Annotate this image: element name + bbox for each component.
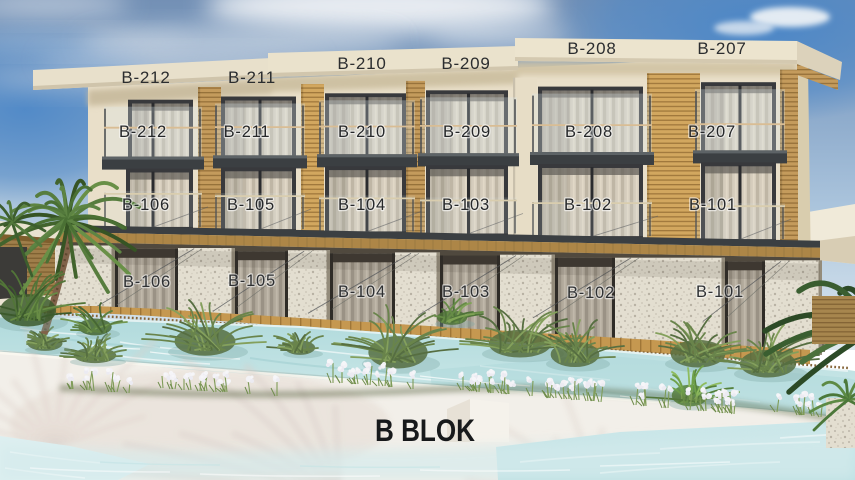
svg-text:B-104: B-104 — [338, 196, 386, 214]
svg-text:B-101: B-101 — [689, 196, 737, 214]
svg-text:B-210: B-210 — [338, 123, 386, 141]
svg-text:B-211: B-211 — [224, 123, 271, 141]
svg-text:B-103: B-103 — [442, 196, 490, 214]
svg-text:B-209: B-209 — [441, 54, 490, 73]
svg-text:B-106: B-106 — [123, 273, 171, 291]
svg-text:B-105: B-105 — [227, 196, 275, 214]
svg-text:B-211: B-211 — [228, 68, 276, 87]
svg-text:B-208: B-208 — [567, 39, 616, 58]
svg-text:B-104: B-104 — [338, 283, 386, 301]
svg-text:B-212: B-212 — [121, 68, 170, 87]
svg-text:B-105: B-105 — [228, 272, 276, 290]
svg-text:B-208: B-208 — [565, 123, 613, 141]
svg-text:B-106: B-106 — [122, 196, 170, 214]
svg-text:B-207: B-207 — [697, 39, 746, 58]
svg-text:B-101: B-101 — [696, 283, 744, 301]
svg-text:B-103: B-103 — [442, 283, 490, 301]
svg-text:B-102: B-102 — [567, 284, 615, 302]
svg-text:B-209: B-209 — [443, 123, 491, 141]
svg-text:B-212: B-212 — [119, 123, 167, 141]
svg-text:B BLOK: B BLOK — [375, 412, 475, 448]
svg-text:B-210: B-210 — [337, 54, 386, 73]
svg-text:B-207: B-207 — [688, 123, 736, 141]
svg-text:B-102: B-102 — [564, 196, 612, 214]
